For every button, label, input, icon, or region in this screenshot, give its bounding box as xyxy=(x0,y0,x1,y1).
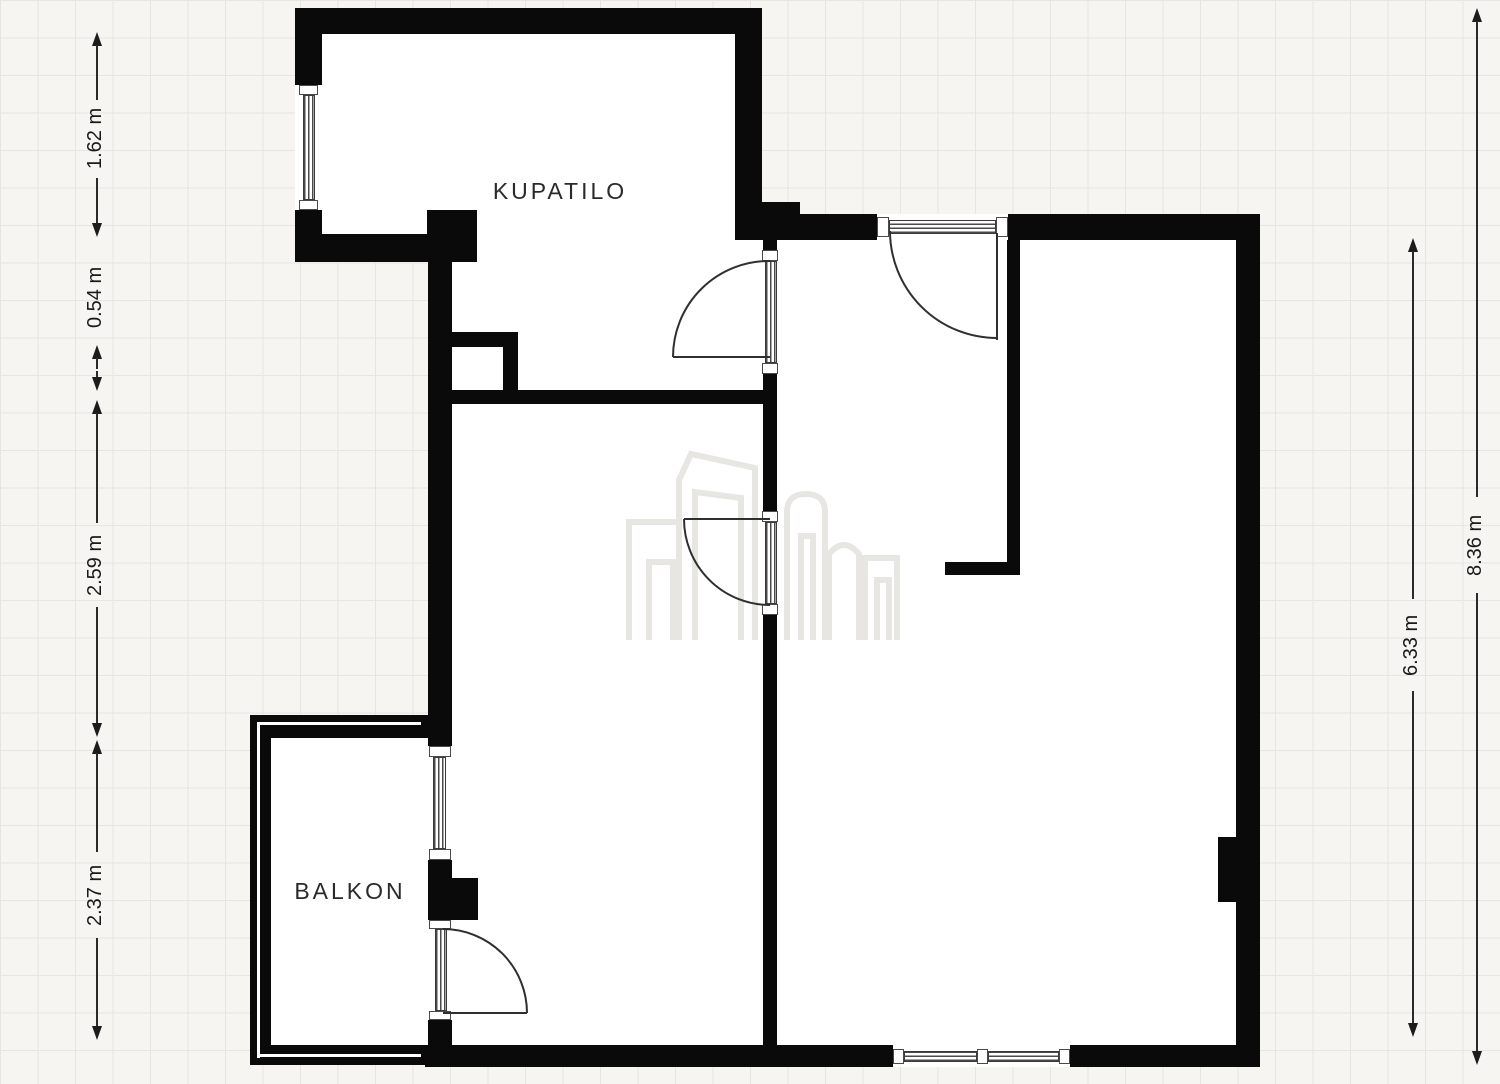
dimension-arrow xyxy=(92,32,102,46)
dimension-line xyxy=(96,413,98,523)
dimension-arrow xyxy=(92,740,102,754)
dimension-line xyxy=(1412,691,1414,1024)
middle-room-door-arc xyxy=(684,519,770,605)
dimension-arrow xyxy=(92,223,102,237)
dimension-arrow xyxy=(92,1026,102,1040)
dimension-line xyxy=(96,45,98,100)
dimension-line xyxy=(96,178,98,224)
dimension-label: 1.62 m xyxy=(84,100,110,176)
bathroom-door-arc xyxy=(673,261,770,357)
door-swing-arcs xyxy=(0,0,1500,1084)
dimension-arrow xyxy=(92,400,102,414)
dimension-line xyxy=(96,357,98,369)
room-label-kupatilo: KUPATILO xyxy=(480,178,640,205)
dimension-label: 6.33 m xyxy=(1400,600,1426,690)
dimension-line xyxy=(1476,593,1478,1052)
dimension-arrow xyxy=(1472,1051,1482,1065)
dimension-line xyxy=(96,938,98,1027)
balcony-door-arc xyxy=(443,929,527,1013)
dimension-line xyxy=(1412,251,1414,599)
floor-plan-canvas: KUPATILO BALKON 1.62 m 0.54 m 2.59 m 2.3… xyxy=(0,0,1500,1084)
dimension-arrow xyxy=(1408,238,1418,252)
dimension-arrow xyxy=(1408,1023,1418,1037)
entrance-door-arc xyxy=(890,231,997,338)
dimension-label: 2.59 m xyxy=(84,524,110,606)
dimension-line xyxy=(1476,21,1478,497)
dimension-arrow xyxy=(1472,8,1482,22)
dimension-line xyxy=(96,607,98,725)
dimension-label: 8.36 m xyxy=(1464,498,1490,592)
dimension-label: 0.54 m xyxy=(84,258,110,336)
dimension-label: 2.37 m xyxy=(84,853,110,937)
room-label-balkon: BALKON xyxy=(280,878,420,905)
dimension-arrow xyxy=(92,723,102,737)
dimension-line xyxy=(96,753,98,852)
dimension-arrow xyxy=(92,377,102,391)
